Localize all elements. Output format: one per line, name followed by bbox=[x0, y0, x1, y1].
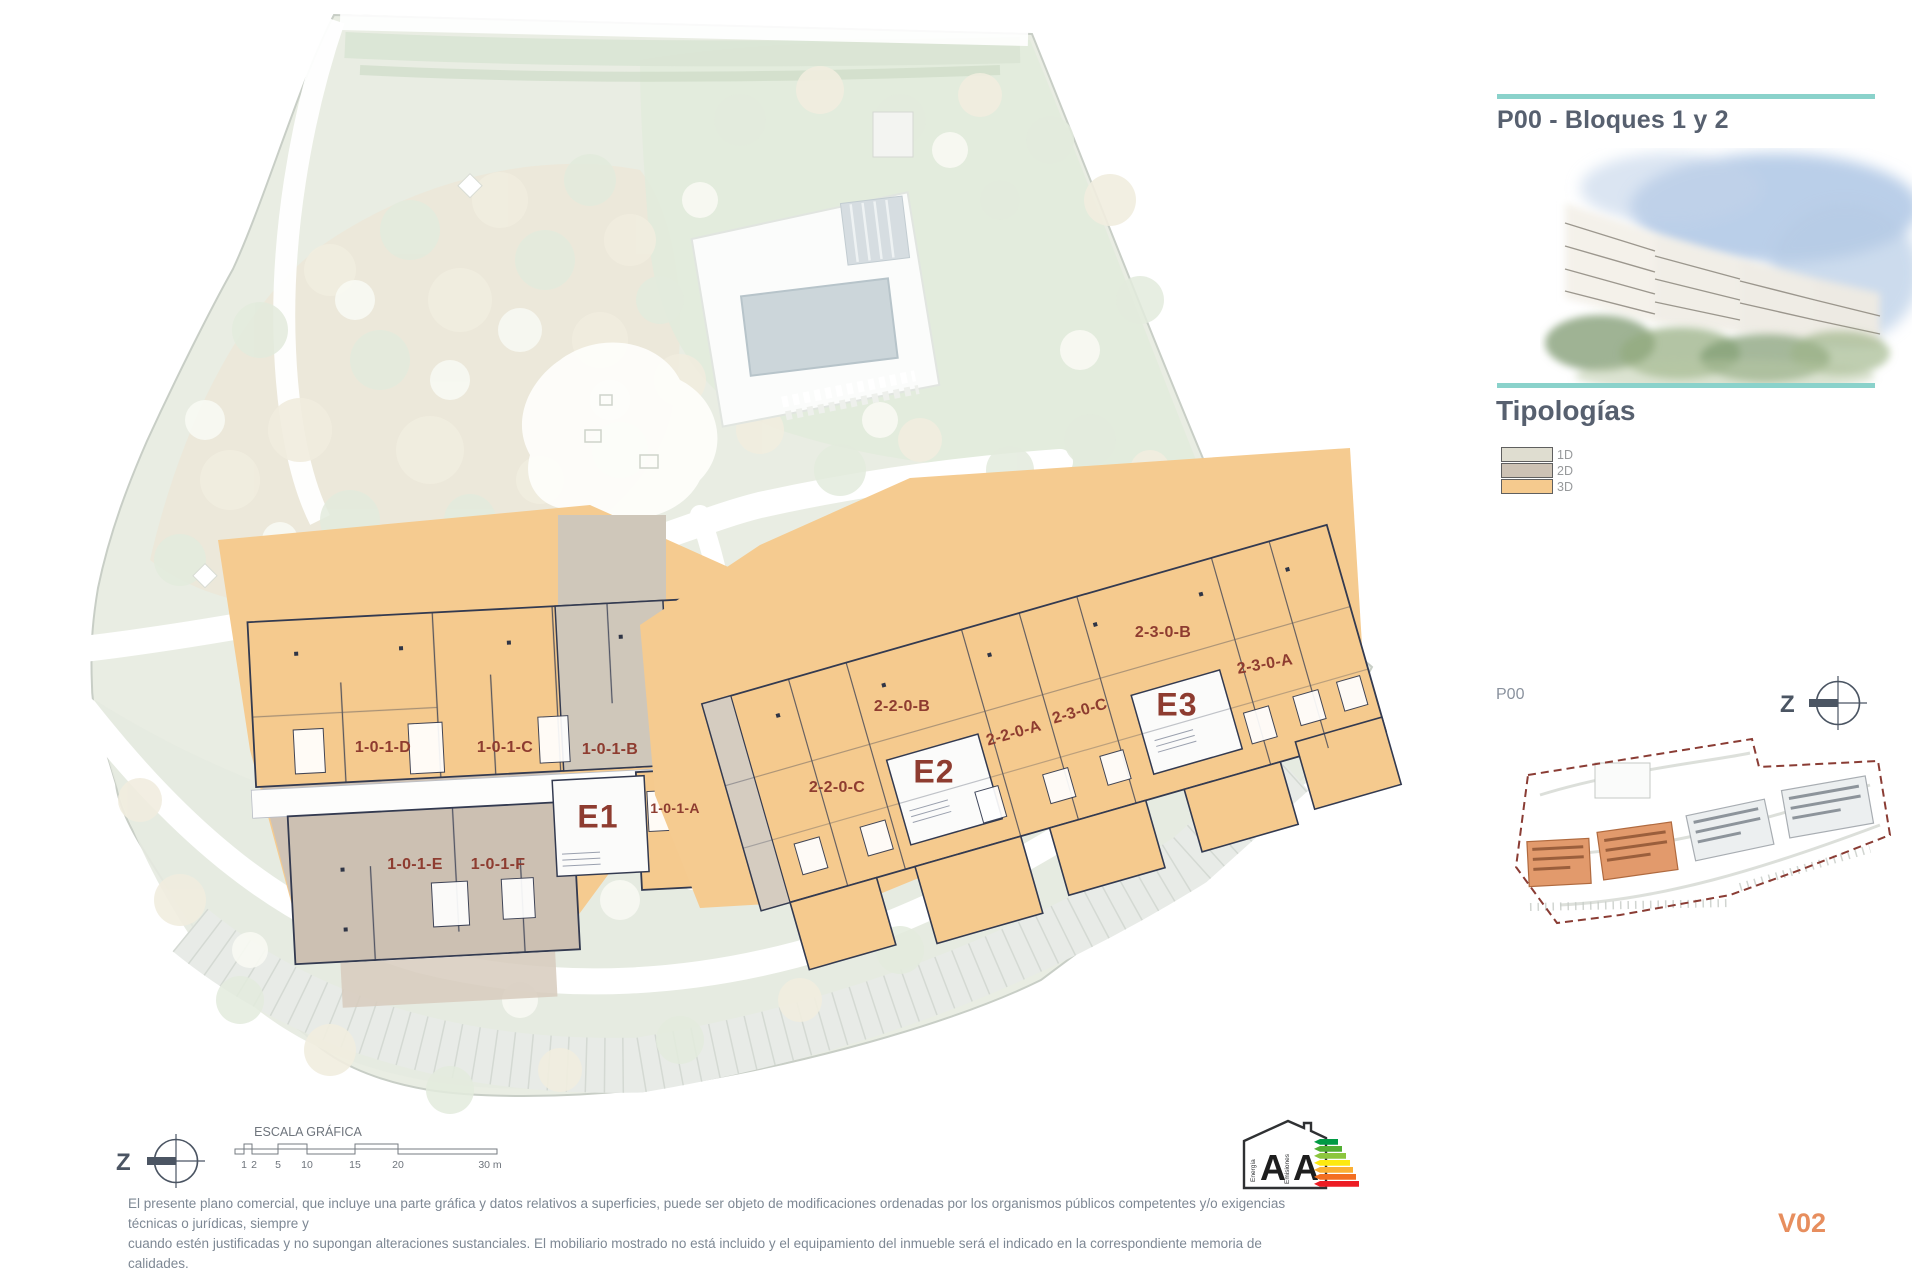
scale-tick: 30 m bbox=[478, 1159, 502, 1171]
north-letter: Z bbox=[116, 1149, 131, 1176]
graphic-scale: ESCALA GRÁFICA 1 2 5 10 15 20 30 m bbox=[220, 1122, 520, 1180]
scale-tick: 5 bbox=[275, 1159, 281, 1171]
legend-row-2d: 2D bbox=[1501, 463, 1573, 479]
energy-axis-word: Energía bbox=[1250, 1159, 1257, 1182]
legend-swatch-1d bbox=[1501, 447, 1553, 462]
legend-row-3d: 3D bbox=[1501, 479, 1573, 495]
unit-label: 1-0-1-A bbox=[650, 800, 700, 816]
disclaimer-line-2: cuando estén justificadas y no supongan … bbox=[128, 1234, 1308, 1274]
entrance-label-e3: E3 bbox=[1156, 687, 1197, 724]
minimap-floor-label: P00 bbox=[1496, 686, 1524, 704]
scale-tick: 1 bbox=[241, 1159, 247, 1171]
legend-swatch-3d bbox=[1501, 479, 1553, 494]
legend-swatch-2d bbox=[1501, 463, 1553, 478]
disclaimer-text: El presente plano comercial, que incluye… bbox=[128, 1194, 1308, 1274]
unit-label: 2-2-0-C bbox=[809, 779, 865, 797]
energy-axis-word: Emisiones bbox=[1284, 1153, 1291, 1184]
scale-tick: 15 bbox=[349, 1159, 361, 1171]
version-badge: V02 bbox=[1778, 1208, 1826, 1239]
energy-certificate-icon: A A Energía Emisiones bbox=[1238, 1114, 1360, 1196]
typologies-legend: 1D 2D 3D bbox=[1501, 447, 1573, 495]
unit-label: 2-3-0-B bbox=[1135, 624, 1191, 642]
north-letter: Z bbox=[1780, 691, 1795, 718]
disclaimer-line-1: El presente plano comercial, que incluye… bbox=[128, 1194, 1308, 1234]
accent-rule-mid bbox=[1497, 383, 1875, 388]
unit-label: 1-0-1-F bbox=[471, 856, 526, 874]
scale-title: ESCALA GRÁFICA bbox=[254, 1124, 362, 1139]
energy-letter: A bbox=[1293, 1147, 1319, 1188]
scale-tick: 20 bbox=[392, 1159, 404, 1171]
building-rendering bbox=[1540, 148, 1912, 388]
unit-label: 1-0-1-C bbox=[477, 739, 533, 757]
key-plan-minimap bbox=[1500, 735, 1910, 945]
plan-sheet: 1-0-1-D 1-0-1-C 1-0-1-B 1-0-1-A 1-0-1-E … bbox=[0, 0, 1920, 1280]
legend-row-1d: 1D bbox=[1501, 447, 1573, 463]
accent-rule-top bbox=[1497, 94, 1875, 99]
legend-label: 2D bbox=[1557, 464, 1573, 478]
scale-tick: 2 bbox=[251, 1159, 257, 1171]
energy-letter: A bbox=[1260, 1147, 1286, 1188]
unit-label: 1-0-1-B bbox=[582, 741, 638, 759]
compass-icon: Z bbox=[1776, 672, 1881, 734]
entrance-label-e1: E1 bbox=[577, 799, 618, 836]
scale-tick: 10 bbox=[301, 1159, 313, 1171]
unit-label: 2-2-0-B bbox=[874, 698, 930, 716]
unit-label: 1-0-1-D bbox=[355, 739, 411, 757]
entrance-label-e2: E2 bbox=[913, 754, 954, 791]
page-title: P00 - Bloques 1 y 2 bbox=[1497, 106, 1729, 135]
typologies-title: Tipologías bbox=[1496, 395, 1636, 427]
compass-icon: Z bbox=[108, 1130, 213, 1192]
energy-scale-arrows bbox=[1314, 1139, 1359, 1187]
unit-label: 1-0-1-E bbox=[387, 856, 442, 874]
legend-label: 3D bbox=[1557, 480, 1573, 494]
legend-label: 1D bbox=[1557, 448, 1573, 462]
